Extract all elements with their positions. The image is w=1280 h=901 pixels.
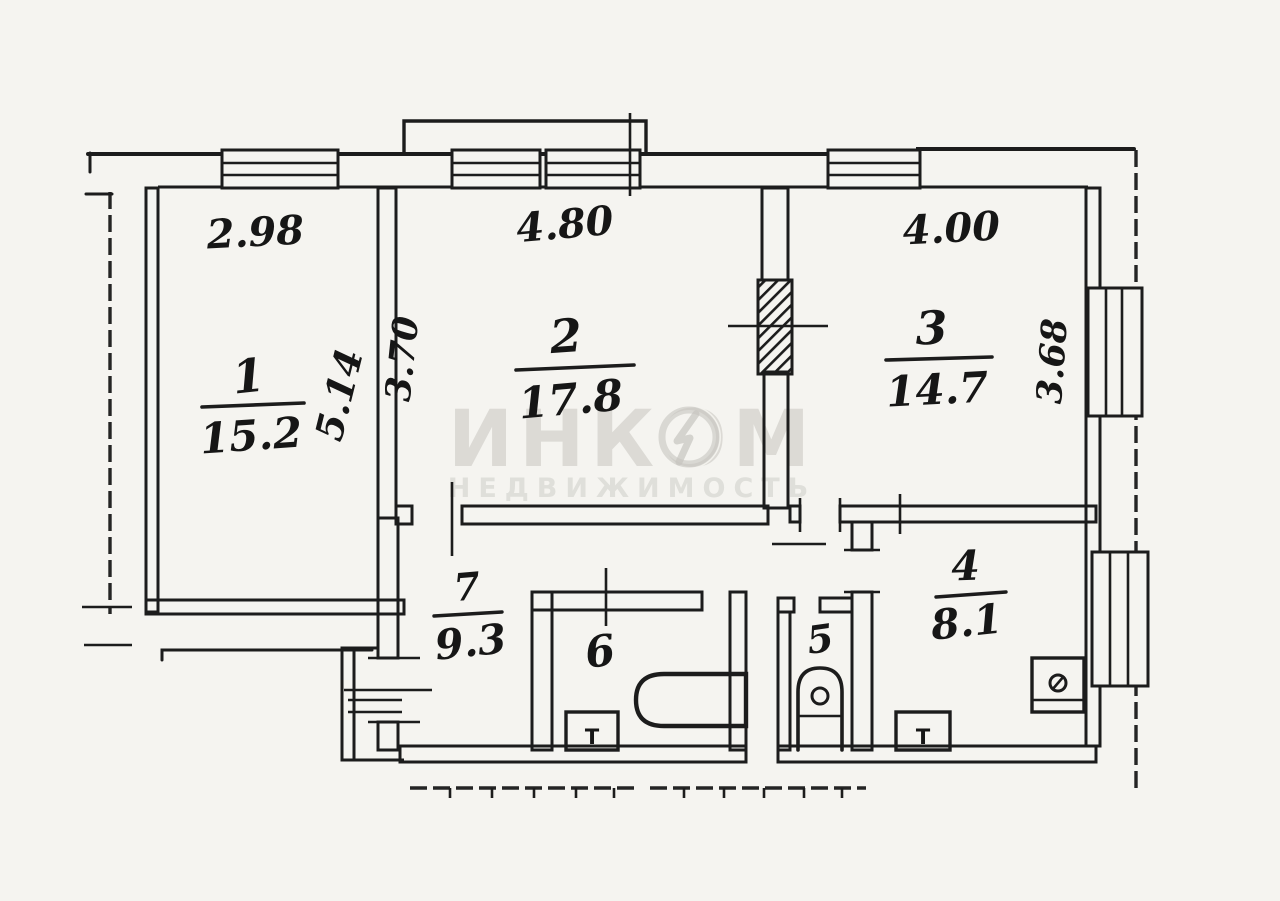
wall-segment [820,598,852,612]
wall-segment [532,592,702,610]
watermark: ИНКОМ НЕДВИЖИМОСТЬ [448,395,817,504]
scanned-floor-plan: ИНКОМ НЕДВИЖИМОСТЬ [0,0,1280,901]
room-2-underline [516,365,634,370]
wall-segment [532,592,552,750]
window-room1 [222,150,338,188]
balcony-outline [404,121,646,152]
bathroom-sink-label: Т [585,725,600,749]
room-1-area: 15.2 [198,408,303,464]
wall-segment [840,506,1096,522]
window-room2-right [546,150,640,188]
room-5-label: 5 [804,615,836,663]
room-2-area: 17.8 [516,371,625,430]
wall-segment [790,506,800,522]
kitchen-sink: Т [896,712,950,750]
window-room3-top [828,150,920,188]
bathroom-sink: Т [566,712,618,750]
room-1-label: 1 15.2 [198,348,304,464]
room-3-area: 14.7 [885,362,990,416]
room-2-label: 2 17.8 [516,308,634,430]
wall-segment [852,522,872,550]
stove [1032,658,1084,712]
watermark-title: ИНКОМ [448,395,816,485]
wall-segment [462,506,768,524]
room-7-label: 7 9.3 [433,563,509,670]
dim-room1-width: 2.98 [204,207,305,259]
window-room2-left [452,150,540,188]
wall-segment [378,518,398,658]
room-4-number: 4 [950,542,980,591]
room-4-area: 8.1 [928,594,1005,649]
wall-segment [778,598,794,612]
dim-room2-width: 4.80 [514,197,615,252]
room-3-number: 3 [915,300,949,355]
window-room3-side [1088,288,1142,416]
room-2-number: 2 [547,308,584,364]
room-1-number: 1 [230,348,267,405]
window-kitchen [1092,552,1148,686]
room-4-label: 4 8.1 [928,542,1006,650]
dim-room1-depth: 5.14 [306,344,372,445]
kitchen-sink-label: Т [916,725,931,749]
wall-segment [852,592,872,750]
wall-segment [378,722,398,750]
room-7-number: 7 [452,563,482,610]
floor-plan-svg: ИНКОМ НЕДВИЖИМОСТЬ [0,0,1280,901]
room-6-label: 6 [582,625,619,679]
dim-room3-depth: 3.68 [1029,317,1076,405]
toilet [798,668,842,750]
wall-segment [146,600,404,614]
dim-room2-depth: 3.70 [378,314,428,403]
room-7-area: 9.3 [433,614,509,669]
room-1-underline [202,403,304,407]
fixtures: Т Т [566,658,1084,750]
wall-segment [778,612,790,750]
dim-room3-width: 4.00 [901,202,1001,254]
watermark-subtitle: НЕДВИЖИМОСТЬ [448,473,817,504]
room-3-underline [886,357,992,360]
wall-segment [342,648,354,760]
wall-segment [762,188,788,282]
room-5-number: 5 [804,615,836,663]
wall-segment [146,188,158,612]
room-6-number: 6 [582,625,619,679]
room-3-label: 3 14.7 [885,300,992,416]
